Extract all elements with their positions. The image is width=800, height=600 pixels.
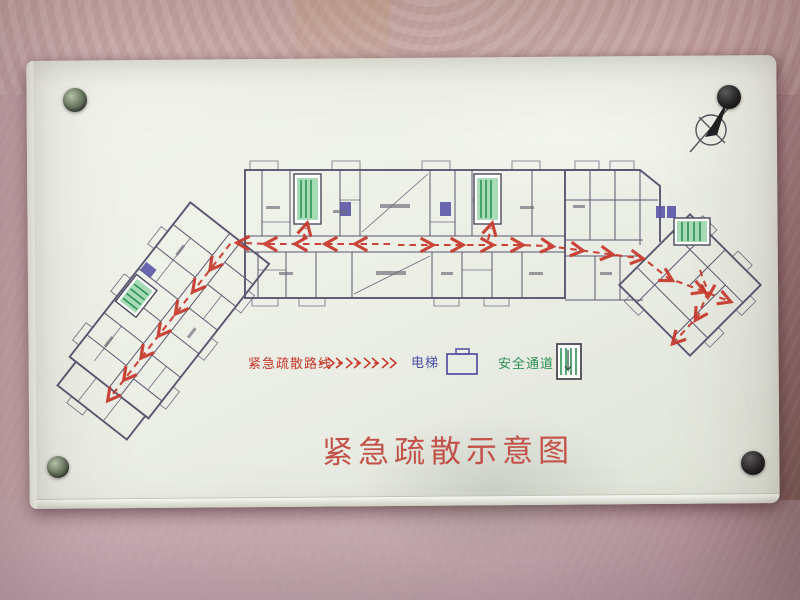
evacuation-route	[111, 244, 230, 397]
screw-icon	[63, 88, 87, 112]
elevator-icon	[656, 206, 665, 218]
screw-icon	[717, 85, 741, 109]
left-wing	[40, 197, 275, 453]
center-block	[245, 161, 565, 306]
elevator-icon	[440, 202, 451, 216]
northeast-section	[565, 161, 660, 300]
elevator-icon	[667, 206, 676, 218]
photo-of-evacuation-sign: { "sign": { "title": "紧急疏散示意图", "legend"…	[0, 0, 800, 600]
stairwells	[294, 174, 710, 245]
screw-icon	[47, 456, 69, 478]
legend-route-label: 紧急疏散路线	[248, 353, 332, 372]
legend-exit-stairs-icon	[557, 344, 581, 379]
legend-exit-label: 安全通道	[498, 353, 554, 372]
sign-title: 紧急疏散示意图	[322, 425, 582, 472]
screw-icon	[741, 451, 765, 475]
legend-elevator-icon	[447, 349, 477, 374]
legend-elevator-label: 电梯	[411, 352, 439, 371]
elevator-icon	[340, 202, 351, 216]
floor-plan	[0, 0, 800, 600]
